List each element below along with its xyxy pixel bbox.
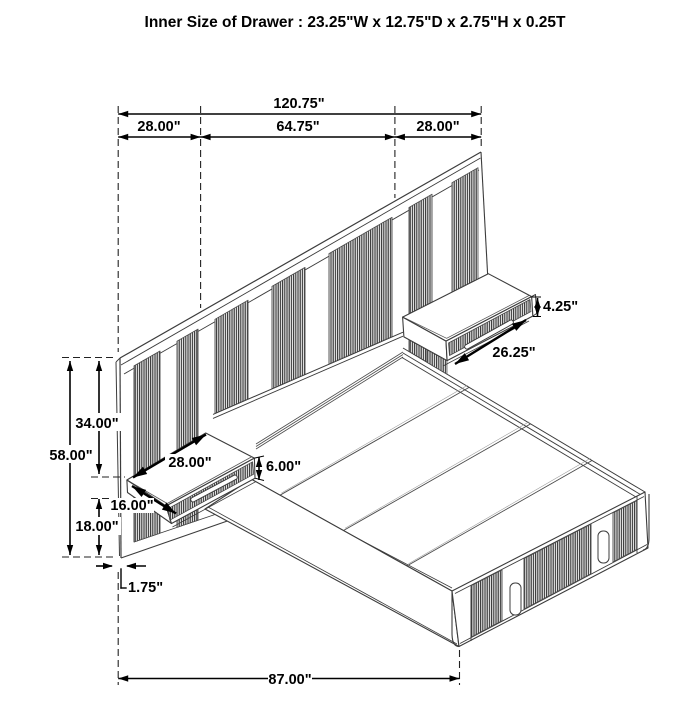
svg-text:Inner Size of Drawer : 23.25"W: Inner Size of Drawer : 23.25"W x 12.75"D… bbox=[145, 14, 566, 31]
svg-text:4.25": 4.25" bbox=[543, 299, 578, 315]
svg-text:64.75": 64.75" bbox=[276, 119, 319, 135]
svg-text:87.00": 87.00" bbox=[268, 672, 311, 688]
svg-text:58.00": 58.00" bbox=[49, 448, 92, 464]
svg-text:1.75": 1.75" bbox=[128, 580, 163, 596]
svg-text:34.00": 34.00" bbox=[75, 416, 118, 432]
svg-text:6.00": 6.00" bbox=[266, 459, 301, 475]
svg-text:28.00": 28.00" bbox=[168, 455, 211, 471]
svg-text:28.00": 28.00" bbox=[137, 119, 180, 135]
svg-text:28.00": 28.00" bbox=[416, 119, 459, 135]
svg-text:16.00": 16.00" bbox=[110, 498, 153, 514]
svg-text:26.25": 26.25" bbox=[492, 345, 535, 361]
svg-text:120.75": 120.75" bbox=[273, 96, 324, 112]
svg-text:18.00": 18.00" bbox=[75, 519, 118, 535]
